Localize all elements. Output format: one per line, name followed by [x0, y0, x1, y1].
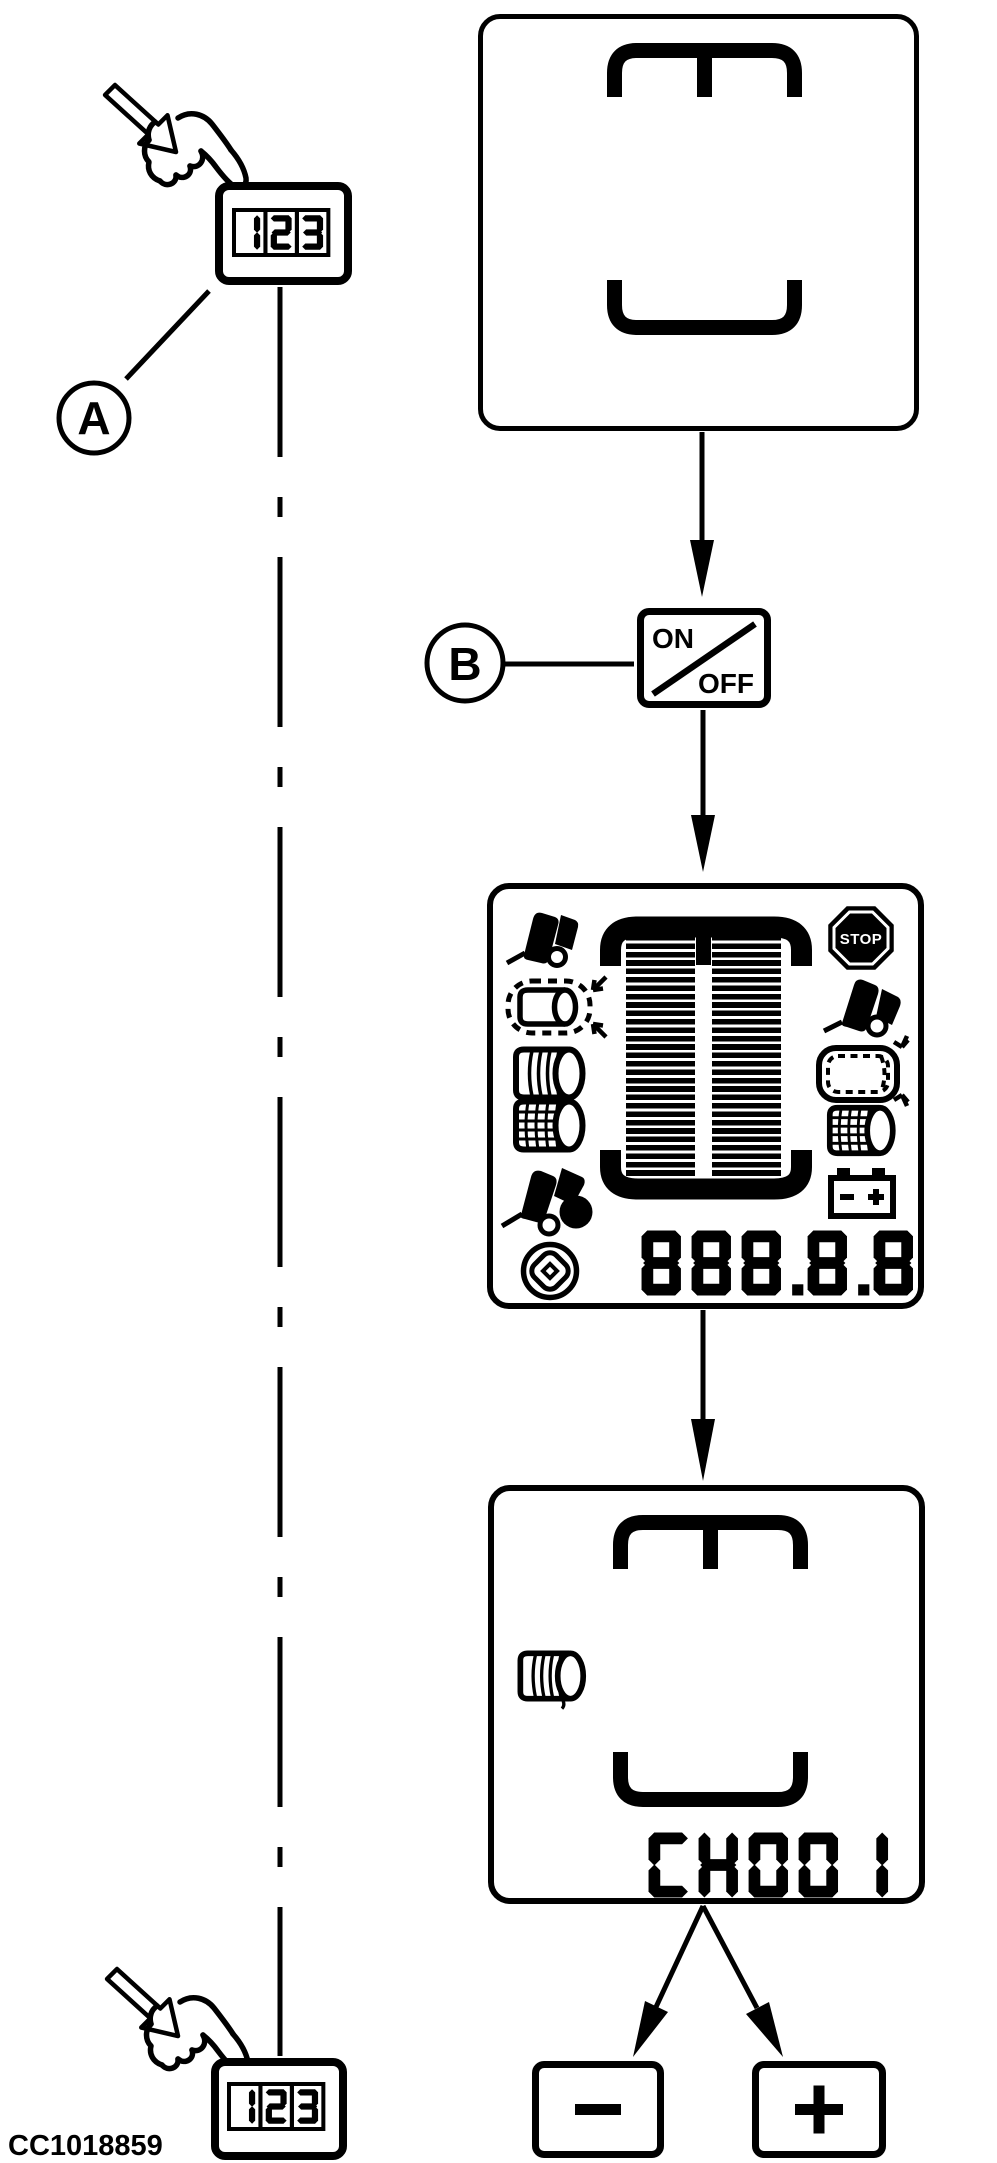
callout-b-label: B — [448, 638, 481, 690]
arrow-power-to-overview — [691, 710, 715, 872]
twine-wrap-icon — [512, 1046, 588, 1101]
callout-a-circle — [59, 383, 129, 453]
plus-button[interactable] — [752, 2061, 886, 2158]
battery-icon — [827, 1163, 897, 1220]
stop-icon: STOP — [828, 906, 894, 970]
net-wrap-right-icon — [826, 1103, 898, 1158]
selector-display-top — [232, 208, 330, 257]
overview-counter-display — [641, 1230, 914, 1296]
figure-code: CC1018859 — [8, 2130, 163, 2163]
bale-eject-icon — [500, 1162, 608, 1234]
callout-a-line — [126, 291, 209, 379]
power-on-label: ON — [652, 623, 694, 654]
bale-fill-indicator — [600, 908, 812, 1208]
press-arrow-icon — [107, 1969, 178, 2036]
tailgate-open-right-icon — [822, 973, 904, 1035]
arrow-channel-to-minus — [633, 1906, 703, 2057]
bale-size-left-icon — [505, 975, 609, 1039]
stop-label: STOP — [840, 931, 883, 948]
tailgate-open-icon — [505, 905, 579, 969]
callout-a-label: A — [77, 392, 110, 444]
power-button[interactable]: ON OFF — [637, 608, 771, 708]
minus-button[interactable] — [532, 2061, 664, 2158]
bale-chamber-brackets-icon — [613, 1515, 808, 1807]
arrow-startup-to-power — [690, 432, 714, 597]
minus-icon — [539, 2068, 657, 2151]
bale-chamber-brackets-icon — [607, 43, 802, 335]
diagram-canvas: A B — [0, 0, 997, 2163]
channel-screen — [488, 1485, 925, 1904]
bale-fill-brackets-icon — [600, 908, 812, 1208]
arrow-overview-to-channel — [691, 1310, 715, 1481]
press-arrow-icon — [105, 85, 176, 152]
selector-display-bottom — [227, 2082, 325, 2131]
selector-button-bottom[interactable] — [211, 2058, 347, 2160]
power-off-label: OFF — [698, 668, 754, 699]
arrow-channel-to-plus — [703, 1906, 783, 2057]
knife-rotor-icon — [520, 1240, 580, 1302]
net-wrap-icon — [512, 1098, 588, 1153]
startup-screen — [478, 14, 919, 431]
plus-icon — [759, 2068, 879, 2151]
selector-button-top[interactable] — [215, 182, 352, 285]
channel-value-display — [648, 1832, 889, 1898]
callout-b-circle — [427, 625, 503, 701]
twine-wrap-icon — [515, 1650, 590, 1702]
overview-screen: STOP — [487, 883, 924, 1309]
bale-size-right-icon — [815, 1036, 915, 1106]
